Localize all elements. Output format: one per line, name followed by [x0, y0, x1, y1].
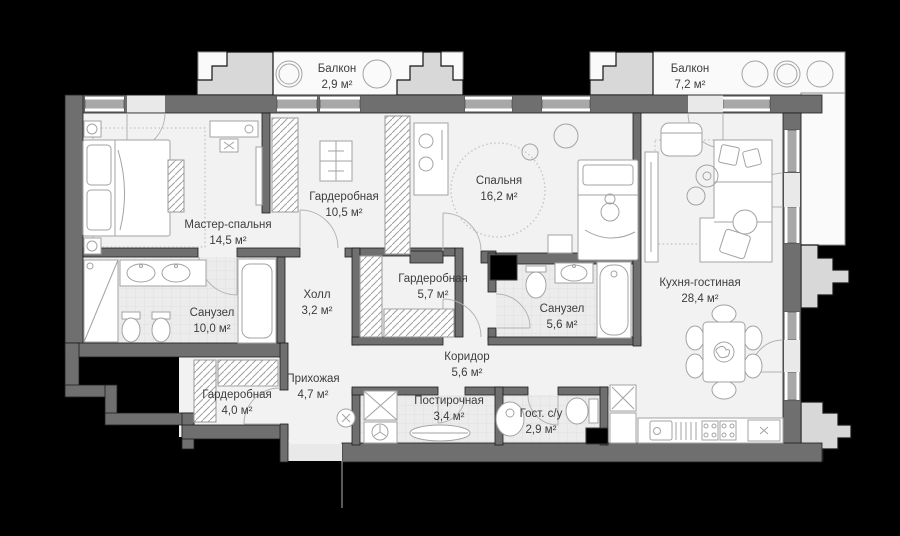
window [723, 97, 770, 112]
window [277, 97, 317, 112]
room-area-corridor: 5,6 м² [452, 367, 483, 379]
window [320, 97, 360, 112]
floor-plan-canvas: Балкон 2,9 м² Балкон 7,2 м² Мастер-спаль… [0, 0, 900, 536]
room-area-wardrobe-master: 10,5 м² [325, 207, 362, 219]
window [85, 97, 124, 112]
room-area-bathroom-master: 10,0 м² [193, 323, 230, 335]
room-area-laundry: 3,4 м² [434, 411, 465, 423]
room-label-corridor: Коридор [444, 351, 489, 363]
room-area-balcony-left: 2,9 м² [322, 79, 353, 91]
room-label-laundry: Постирочная [414, 395, 484, 407]
room-label-wardrobe-middle: Гардеробная [398, 273, 468, 285]
room-label-wardrobe-master: Гардеробная [309, 191, 379, 203]
room-area-kitchen-living: 28,4 м² [681, 293, 718, 305]
floor-plan: Балкон 2,9 м² Балкон 7,2 м² Мастер-спаль… [0, 0, 900, 536]
room-label-balcony-right: Балкон [671, 63, 710, 75]
room-area-hall: 3,2 м² [302, 305, 333, 317]
room-label-kitchen-living: Кухня-гостиная [659, 277, 740, 289]
window [465, 97, 512, 112]
room-area-wardrobe-middle: 5,7 м² [418, 289, 449, 301]
room-label-bathroom-master: Санузел [190, 307, 235, 319]
room-label-balcony-left: Балкон [318, 63, 357, 75]
entry-fixtures [337, 409, 355, 427]
room-area-wardrobe-entry: 4,0 м² [222, 405, 253, 417]
room-label-guest-wc: Гост. с/у [520, 408, 563, 420]
window [785, 130, 800, 172]
room-label-master-bedroom: Мастер-спальня [184, 219, 271, 231]
room-area-bathroom-second: 5,6 м² [547, 319, 578, 331]
room-label-bathroom-second: Санузел [540, 303, 585, 315]
window [785, 312, 800, 340]
room-area-guest-wc: 2,9 м² [526, 424, 557, 436]
room-area-master-bedroom: 14,5 м² [209, 235, 246, 247]
room-area-balcony-right: 7,2 м² [675, 79, 706, 91]
room-area-entry-hall: 4,7 м² [298, 389, 329, 401]
room-label-hall: Холл [303, 289, 330, 301]
room-area-bedroom: 16,2 м² [480, 191, 517, 203]
window [785, 207, 800, 243]
room-label-entry-hall: Прихожая [286, 373, 339, 385]
room-label-bedroom: Спальня [476, 175, 522, 187]
window [785, 372, 800, 400]
room-label-wardrobe-entry: Гардеробная [202, 389, 272, 401]
window [542, 97, 590, 112]
